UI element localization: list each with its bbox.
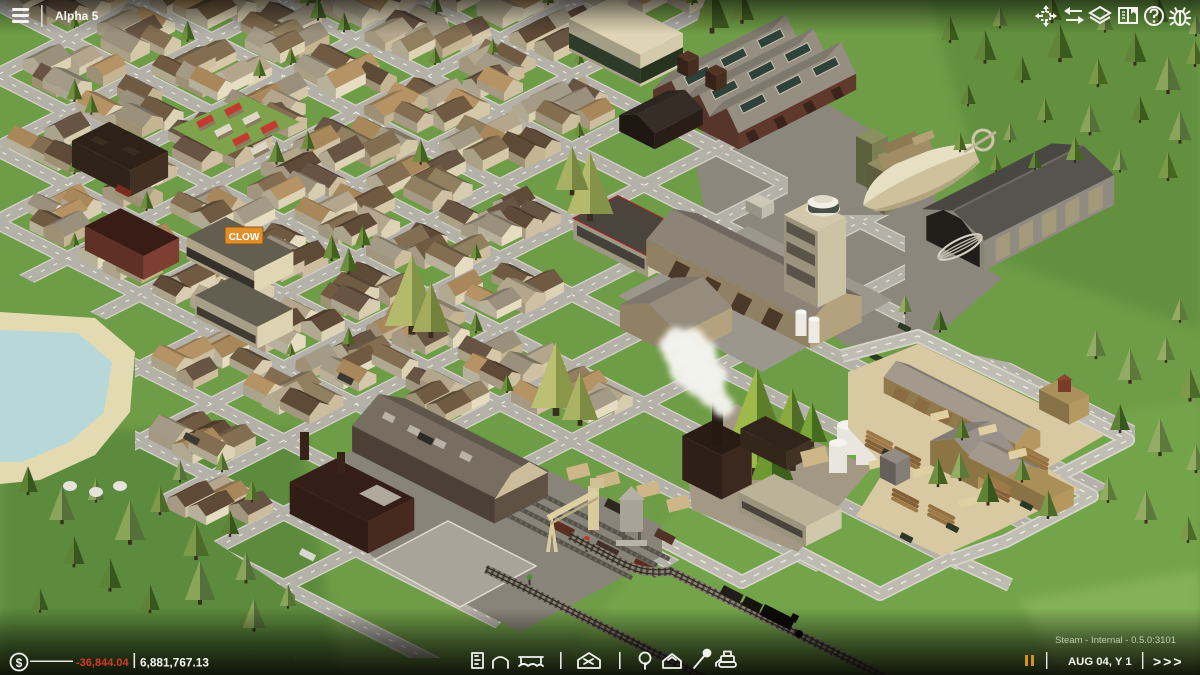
svg-text:Alpha 5: Alpha 5 — [55, 9, 99, 23]
svg-text:$: $ — [16, 656, 23, 670]
svg-text:AUG 04, Y 1: AUG 04, Y 1 — [1068, 656, 1132, 668]
svg-text:-36,844.04: -36,844.04 — [76, 657, 129, 669]
svg-text:6,881,767.13: 6,881,767.13 — [140, 656, 209, 670]
svg-text:>>>: >>> — [1153, 654, 1184, 670]
svg-text:Steam - Internal - 0.5.0:3101: Steam - Internal - 0.5.0:3101 — [1055, 635, 1176, 646]
svg-text:CLOW: CLOW — [229, 232, 260, 243]
